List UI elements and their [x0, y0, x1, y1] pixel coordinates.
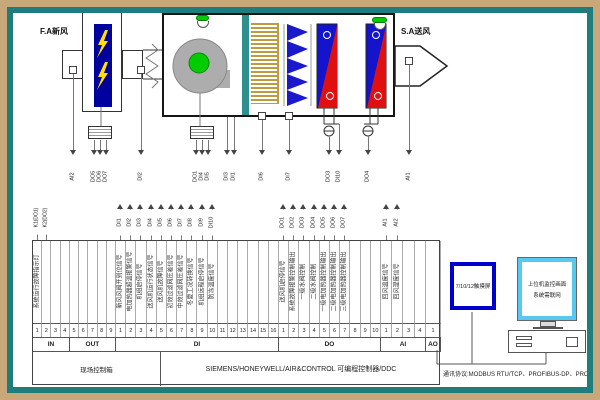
column-number: 2 — [42, 323, 51, 337]
section-divider — [242, 15, 249, 115]
point-description: 新风风阀开到位信号 — [118, 243, 125, 321]
column-number: 3 — [136, 323, 146, 337]
section-label: IN — [33, 337, 70, 351]
table-column — [269, 241, 279, 323]
sensor-wire — [141, 74, 142, 150]
column-number: 7 — [340, 323, 350, 337]
point-description: 二级电加热器控制输出 — [332, 243, 339, 321]
point-description: 送风机运行状态信号 — [148, 243, 155, 321]
sensor-wire — [106, 140, 107, 150]
sensor-wire — [262, 120, 263, 150]
io-wire-label: DI3 — [137, 210, 144, 236]
supply-duct-sensor — [405, 57, 413, 65]
drive-slot-1 — [516, 336, 532, 340]
point-description: 系统故障报警控制输出 — [291, 243, 298, 321]
wire-arrow-icon — [406, 150, 412, 155]
column-number: 8 — [98, 323, 107, 337]
stub-arrow-icon — [280, 204, 286, 209]
stub-arrow-icon — [137, 204, 143, 209]
monitor-line2: 系统需联网 — [533, 291, 561, 299]
wire-arrow-icon — [326, 150, 332, 155]
table-column — [371, 241, 381, 323]
column-number: 6 — [330, 323, 340, 337]
stub-arrow-icon — [300, 204, 306, 209]
io-wire-label: DI7 — [178, 210, 185, 236]
column-number: 14 — [248, 323, 258, 337]
column-number: 5 — [320, 323, 330, 337]
stub-arrow-icon — [311, 204, 317, 209]
sensor-wire — [227, 117, 228, 150]
sensor-wire — [196, 140, 197, 150]
point-description: 回风湿度信号 — [394, 243, 401, 321]
column-number: 16 — [269, 323, 279, 337]
wire-arrow-icon — [138, 150, 144, 155]
wire-label-di3: DI3 — [224, 162, 231, 192]
table-column — [98, 241, 107, 323]
column-number: 3 — [299, 323, 309, 337]
sensor-wire — [202, 140, 203, 150]
table-column — [218, 241, 228, 323]
sensor-wire — [329, 136, 330, 150]
plc-cell: SIEMENS/HONEYWELL/AIR&CONTROL 可编程控制器/DDC — [161, 351, 441, 386]
section-label: DO — [279, 337, 381, 351]
stub-arrow-icon — [178, 204, 184, 209]
sensor-wire — [94, 140, 95, 150]
wire-arrow-icon — [224, 150, 230, 155]
stub-arrow-icon — [383, 204, 389, 209]
heat-coil-symbol — [146, 44, 158, 88]
io-wire-label: DO1 — [280, 210, 287, 236]
touchscreen-box: 7/10/12触摸屏 — [450, 262, 496, 310]
io-wire-label: DI4 — [147, 210, 154, 236]
stub-arrow-icon — [148, 204, 154, 209]
stub-arrow-icon — [341, 204, 347, 209]
point-description: 一级电加热器控制输出 — [321, 243, 328, 321]
wire-label-di1: DI1 — [231, 162, 238, 192]
wire-label-di10: DI10 — [336, 162, 343, 192]
point-description: 机组启停信号 — [138, 243, 145, 321]
column-number: 9 — [107, 323, 116, 337]
point-description: 回风温度信号 — [383, 243, 390, 321]
column-number: 1 — [426, 323, 441, 337]
column-number: 10 — [371, 323, 381, 337]
column-number: 1 — [279, 323, 289, 337]
table-column — [228, 241, 238, 323]
column-number: 2 — [289, 323, 299, 337]
table-column — [361, 241, 371, 323]
table-column — [79, 241, 88, 323]
sensor-wire — [368, 136, 369, 150]
io-wire-label: AI1 — [382, 210, 389, 236]
wire-label-do7: DO7 — [103, 162, 110, 192]
duct-sensor-fresh — [69, 66, 77, 74]
duct-sensor-heater — [137, 66, 145, 74]
io-wire-label: DO6 — [331, 210, 338, 236]
column-number: 4 — [147, 323, 157, 337]
table-column — [51, 241, 60, 323]
monitor-stand-base — [533, 327, 563, 329]
point-description: 系统运行故障指示灯 — [34, 243, 41, 321]
wire-label-di7: DI7 — [286, 162, 293, 192]
column-number: 8 — [187, 323, 197, 337]
io-wire-label: DI5 — [157, 210, 164, 236]
wire-arrow-icon — [365, 150, 371, 155]
io-wire-label: DO3 — [300, 210, 307, 236]
column-number: 5 — [70, 323, 79, 337]
column-number: 8 — [350, 323, 360, 337]
column-number: 15 — [259, 323, 269, 337]
column-number: 11 — [218, 323, 228, 337]
table-column — [248, 241, 258, 323]
point-description: 送风机启停信号 — [281, 243, 288, 321]
io-wire-label: DI2 — [127, 210, 134, 236]
sensor-wire — [208, 140, 209, 150]
stub-arrow-icon — [209, 204, 215, 209]
column-number: 1 — [33, 323, 42, 337]
stub-arrow-icon — [117, 204, 123, 209]
stub-arrow-icon — [321, 204, 327, 209]
filter-tap-2 — [285, 112, 293, 120]
wire-arrow-icon — [259, 150, 265, 155]
wire-arrow-icon — [205, 150, 211, 155]
heater-outlet-tab — [122, 50, 143, 79]
column-number: 4 — [310, 323, 320, 337]
stub-arrow-icon — [188, 204, 194, 209]
hvac-control-diagram: F.A新风 S.A送风 — [0, 0, 600, 400]
column-number: 6 — [79, 323, 88, 337]
io-wire-label: AI2 — [393, 210, 400, 236]
filter-tap-1 — [258, 112, 266, 120]
field-control-box-cell: 现场控制箱 — [33, 351, 161, 386]
table-column — [88, 241, 97, 323]
table-column — [70, 241, 79, 323]
drive-slot-2 — [516, 343, 532, 347]
table-column — [107, 241, 116, 323]
table-column — [259, 241, 269, 323]
fresh-air-label: F.A新风 — [40, 26, 68, 37]
wire-label-di5: DI5 — [205, 162, 212, 192]
power-button — [566, 337, 578, 347]
duct-connection — [143, 50, 162, 79]
io-wire-label: DI1 — [117, 210, 124, 236]
heater-contactor-symbol — [88, 126, 112, 139]
point-description: 防冻温度信号 — [209, 243, 216, 321]
electric-heater-box — [94, 24, 112, 107]
wire-arrow-icon — [103, 150, 109, 155]
point-description: 三级电加热器控制输出 — [342, 243, 349, 321]
point-description: 中效过滤网压差信号 — [179, 243, 186, 321]
column-number: 5 — [157, 323, 167, 337]
protocol-text: 通讯协议:MODBUS RTU/TCP、PROFIBUS-DP、PROFINET — [443, 369, 595, 378]
touchscreen-label: 7/10/12触摸屏 — [456, 282, 491, 290]
section-label: AI — [381, 337, 426, 351]
io-wire-label: DI9 — [198, 210, 205, 236]
io-point-table: 现场控制箱 SIEMENS/HONEYWELL/AIR&CONTROL 可编程控… — [32, 240, 440, 385]
relay-label: K2(DO2) — [42, 201, 49, 235]
table-column — [403, 241, 414, 323]
column-number: 9 — [197, 323, 207, 337]
column-number: 12 — [228, 323, 238, 337]
io-wire-label: DO4 — [310, 210, 317, 236]
point-description: 二级水阀控制 — [311, 243, 318, 321]
stub-arrow-icon — [158, 204, 164, 209]
wire-label-do4: DO4 — [365, 162, 372, 192]
column-number: 10 — [208, 323, 218, 337]
section-label: AO — [426, 337, 441, 351]
io-wire-label: DI10 — [208, 210, 215, 236]
relay-label: K1(DO1) — [33, 201, 40, 235]
point-description: 机组远程启停信号 — [199, 243, 206, 321]
sensor-wire — [409, 65, 410, 150]
table-column — [61, 241, 70, 323]
point-description: 一级水阀控制 — [301, 243, 308, 321]
column-number: 2 — [126, 323, 136, 337]
stub-arrow-icon — [168, 204, 174, 209]
column-number: 6 — [167, 323, 177, 337]
point-description: 初效过滤网压差信号 — [169, 243, 176, 321]
io-wire-label: DI8 — [188, 210, 195, 236]
stub-arrow-icon — [127, 204, 133, 209]
column-number: 13 — [238, 323, 248, 337]
desktop-tower — [508, 330, 586, 353]
monitor-line1: 上位机监控画面 — [528, 280, 567, 288]
monitor: 上位机监控画面 系统需联网 — [518, 258, 576, 320]
wire-arrow-icon — [231, 150, 237, 155]
column-number: 4 — [415, 323, 426, 337]
wire-arrow-icon — [336, 150, 342, 155]
io-wire-label: DI6 — [168, 210, 175, 236]
section-label: OUT — [70, 337, 116, 351]
wire-label-ai1: AI1 — [406, 162, 413, 192]
table-column — [42, 241, 51, 323]
wire-label-di2: DI2 — [138, 162, 145, 192]
column-number: 3 — [51, 323, 60, 337]
wire-arrow-icon — [286, 150, 292, 155]
supply-air-label: S.A送风 — [401, 26, 430, 37]
table-column — [426, 241, 441, 323]
column-number: 3 — [403, 323, 414, 337]
io-wire-label: DO2 — [290, 210, 297, 236]
column-number: 9 — [361, 323, 371, 337]
io-wire-label: DO7 — [341, 210, 348, 236]
point-description: 电加热器超温报警信号 — [128, 243, 135, 321]
column-number: 7 — [177, 323, 187, 337]
supply-air-duct — [395, 46, 447, 86]
stub-arrow-icon — [394, 204, 400, 209]
wire-arrow-icon — [70, 150, 76, 155]
column-number: 1 — [381, 323, 392, 337]
table-column — [350, 241, 360, 323]
column-number: 7 — [88, 323, 97, 337]
sensor-wire — [73, 74, 74, 150]
stub-arrow-icon — [290, 204, 296, 209]
wire-label-di6: DI6 — [259, 162, 266, 192]
table-column — [238, 241, 248, 323]
sensor-wire — [289, 120, 290, 150]
stub-arrow-icon — [331, 204, 337, 209]
section-label: DI — [116, 337, 279, 351]
sensor-wire — [100, 140, 101, 150]
point-description: 送风机故障信号 — [158, 243, 165, 321]
fan-contactor-symbol — [190, 126, 214, 139]
io-wire-label: DO5 — [320, 210, 327, 236]
stub-arrow-icon — [199, 204, 205, 209]
sensor-wire — [234, 117, 235, 150]
wire-label-ai2: AI2 — [70, 162, 77, 192]
column-number: 4 — [61, 323, 70, 337]
wire-label-do3: DO3 — [326, 162, 333, 192]
table-column — [415, 241, 426, 323]
column-number: 2 — [392, 323, 403, 337]
primary-filter — [251, 23, 279, 104]
column-number: 1 — [116, 323, 126, 337]
sensor-wire — [339, 124, 340, 150]
point-description: 冬夏工况转换信号 — [189, 243, 196, 321]
